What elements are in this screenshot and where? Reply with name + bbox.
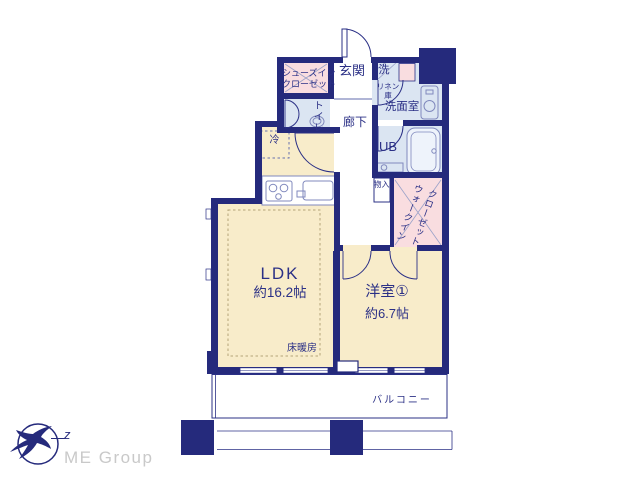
shoe-closet-label-line2: クローゼット — [282, 79, 330, 89]
pillar-top-right — [419, 48, 456, 84]
storage-label: 物入 — [371, 181, 392, 190]
logo-letter: z — [64, 427, 71, 442]
bird-icon — [10, 426, 52, 459]
wall-washroom-bath-divider — [403, 120, 449, 126]
western-window-mullion — [388, 367, 395, 374]
balcony-structure — [181, 375, 452, 456]
logo-dash — [51, 438, 65, 439]
wall-top-right — [371, 57, 421, 63]
balcony-label: バルコニー — [362, 395, 442, 406]
wall-bath-bottom — [372, 172, 449, 178]
wall-corridor-left — [334, 172, 340, 251]
corridor-label: 廊下 — [340, 116, 370, 129]
balcony-pillar — [181, 420, 214, 455]
floorplan-page: 玄関 洗 リネン 庫 洗面室 UB トイレ シューズイン クローゼット 廊下 物… — [0, 0, 640, 480]
western-room-label: 洋室① — [351, 284, 423, 301]
floor-heating-label: 床暖房 — [280, 343, 324, 354]
laundry-label: 洗 — [372, 64, 396, 76]
unit-bath-label: UB — [374, 140, 402, 155]
wall-western-top-c — [417, 245, 449, 251]
western-room-size-label: 約6.7帖 — [353, 307, 421, 322]
company-name: ME Group — [64, 448, 153, 468]
wall-ldk-western-divider — [333, 251, 340, 367]
left-wall-slit-window — [206, 209, 211, 219]
left-wall-slit-window — [206, 269, 211, 280]
entrance-label: 玄関 — [330, 64, 374, 79]
refrigerator-label: 冷 — [260, 135, 289, 146]
wall-step-2 — [211, 198, 262, 204]
linen-label-line2: 庫 — [374, 92, 402, 100]
entrance-door-leaf — [342, 29, 347, 57]
balcony-pillar — [330, 420, 363, 455]
logo-mark — [10, 424, 58, 464]
wall-left-mid — [255, 121, 262, 204]
wall-left-lower — [211, 198, 218, 374]
ldk-size-label: 約16.2帖 — [234, 285, 326, 300]
ldk-window-mullion — [277, 367, 284, 374]
wall-western-top-a — [334, 245, 343, 251]
shutter-box — [337, 361, 358, 372]
entrance-door-arc — [345, 29, 371, 57]
shoe-closet-label-line1: シューズイン — [282, 68, 330, 78]
toilet-floor — [284, 99, 330, 127]
stove — [266, 181, 292, 201]
washroom-label: 洗面室 — [377, 101, 427, 114]
toilet-label: トイレ — [311, 100, 322, 133]
linen-cabinet-box — [399, 64, 415, 82]
ldk-label: LDK — [238, 264, 322, 283]
wall-right — [442, 84, 449, 374]
wall-shoe-closet-bottom — [277, 93, 334, 99]
wall-western-top-b — [371, 245, 390, 251]
